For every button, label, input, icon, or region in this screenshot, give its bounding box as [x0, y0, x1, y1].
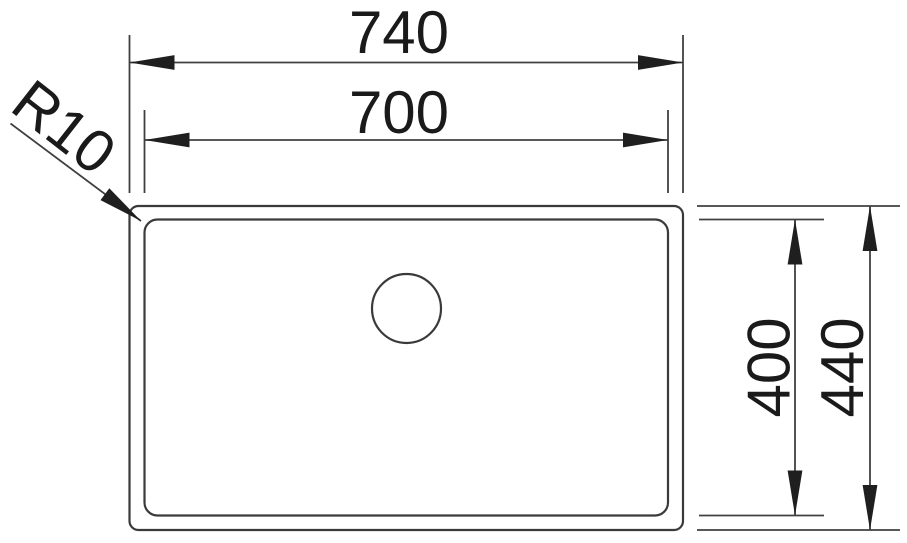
arrow-up-icon [788, 220, 803, 265]
sink-outer-outline [130, 206, 684, 530]
arrow-right-icon [638, 55, 683, 70]
radius-label-group: R10 [0, 67, 128, 188]
dimension-inner-width: 700 [145, 79, 669, 193]
arrow-diagonal-icon [101, 188, 142, 221]
dimension-inner-depth: 400 [699, 220, 824, 516]
dimension-label-overall-width: 740 [349, 0, 449, 66]
dimension-label-inner-width: 700 [349, 79, 449, 146]
sink-inner-bowl-outline [145, 220, 669, 516]
arrow-down-icon [863, 485, 878, 530]
corner-radius-callout: R10 [0, 67, 141, 221]
dimension-label-inner-depth: 400 [736, 317, 803, 417]
dimension-label-corner-radius: R10 [0, 67, 128, 188]
sink-technical-drawing: 740 700 400 440 [0, 0, 907, 543]
sink-dimension-diagram: 740 700 400 440 [0, 0, 907, 543]
drain-hole-circle [372, 274, 441, 343]
arrow-right-icon [623, 133, 668, 148]
arrow-left-icon [130, 55, 175, 70]
arrow-down-icon [788, 471, 803, 516]
dimension-label-overall-depth: 440 [809, 317, 876, 417]
arrow-left-icon [145, 133, 190, 148]
arrow-up-icon [863, 206, 878, 251]
sink-bowl [130, 206, 684, 530]
